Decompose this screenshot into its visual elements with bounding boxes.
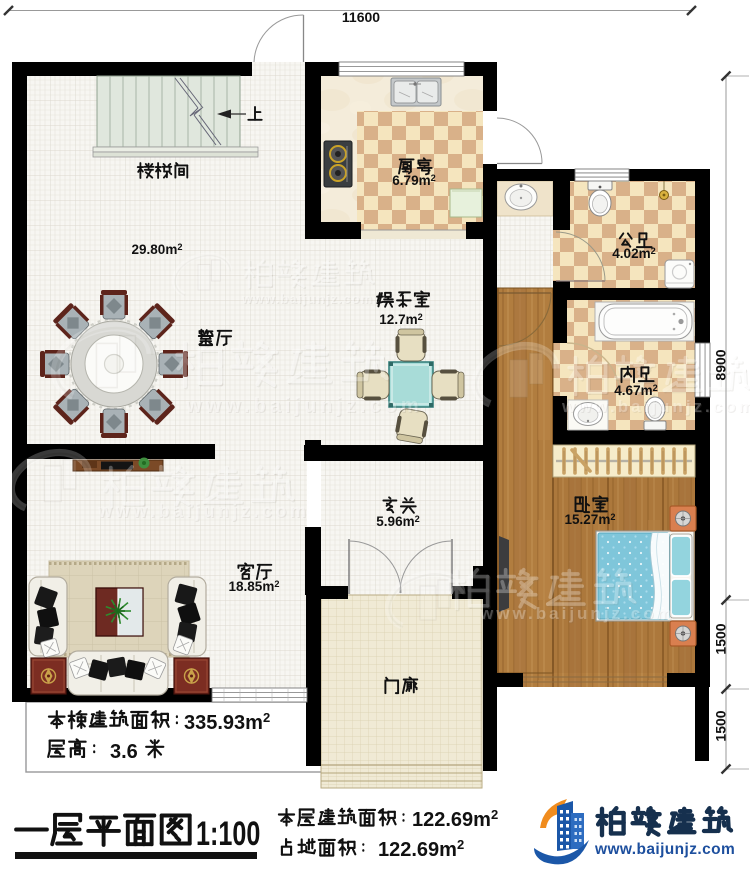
svg-text:www.baijunjz.com: www.baijunjz.com	[479, 604, 675, 623]
svg-text:www.baijunjz.com: www.baijunjz.com	[185, 395, 423, 417]
svg-text:8900: 8900	[713, 349, 729, 380]
svg-text:122.69m2: 122.69m2	[378, 837, 464, 861]
svg-text:11600: 11600	[342, 9, 380, 25]
svg-text:6.79m2: 6.79m2	[392, 173, 435, 188]
svg-text:29.80m2: 29.80m2	[132, 242, 183, 257]
svg-text:122.69m2: 122.69m2	[412, 807, 498, 831]
svg-text:1500: 1500	[713, 710, 729, 741]
svg-text:4.67m2: 4.67m2	[614, 383, 657, 398]
svg-text:335.93m2: 335.93m2	[184, 710, 270, 734]
svg-text:18.85m2: 18.85m2	[229, 579, 280, 594]
svg-text:1500: 1500	[713, 623, 729, 654]
svg-text:www.baijunjz.com: www.baijunjz.com	[594, 841, 735, 858]
svg-text:4.02m2: 4.02m2	[612, 246, 655, 261]
svg-text:5.96m2: 5.96m2	[376, 514, 419, 529]
svg-text:www.baijunjz.com: www.baijunjz.com	[561, 397, 750, 416]
svg-text:3.6: 3.6	[110, 741, 138, 763]
svg-text:www.baijunjz.com: www.baijunjz.com	[241, 291, 373, 306]
svg-text:www.baijunjz.com: www.baijunjz.com	[97, 501, 309, 521]
svg-text:15.27m2: 15.27m2	[565, 512, 616, 527]
svg-text:1:100: 1:100	[196, 815, 260, 853]
svg-text:12.7m2: 12.7m2	[379, 312, 422, 327]
